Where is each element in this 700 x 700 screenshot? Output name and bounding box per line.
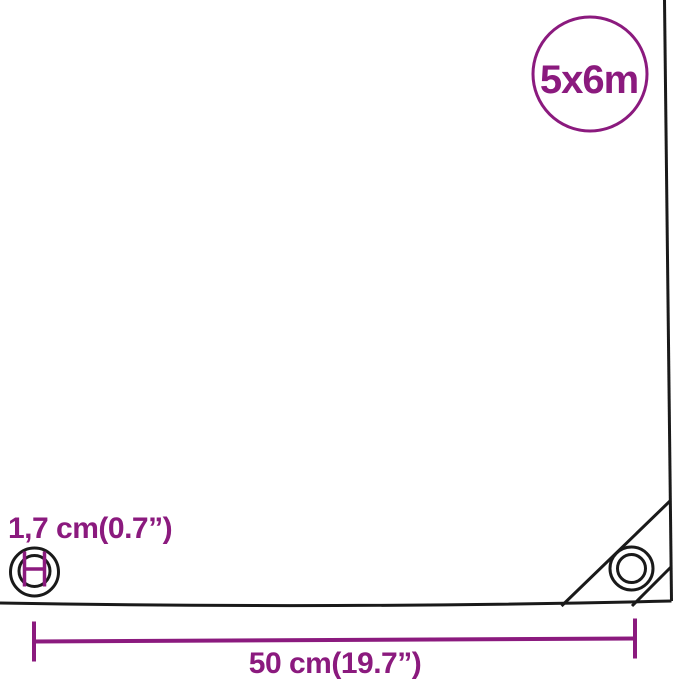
size-badge: 5x6m (533, 17, 647, 131)
corner-grommet-inner-ring (618, 555, 646, 583)
grommet-diameter-icon (11, 548, 59, 596)
tarpaulin-corner-drawing: 5x6m 1,7 cm(0.7”) 50 cm(19.7”) (0, 0, 700, 700)
width-measurement: 50 cm(19.7”) (34, 619, 635, 681)
width-measure-label: 50 cm(19.7”) (249, 647, 421, 680)
tarpaulin-diagram: 5x6m 1,7 cm(0.7”) 50 cm(19.7”) (0, 0, 700, 700)
size-badge-label: 5x6m (540, 58, 638, 102)
width-measure-line (34, 639, 635, 642)
grommet-diameter-annotation: 1,7 cm(0.7”) (8, 512, 172, 596)
tarp-right-edge (665, 0, 672, 601)
tarp-bottom-edge (0, 601, 672, 606)
grommet-diameter-label: 1,7 cm(0.7”) (8, 512, 172, 545)
